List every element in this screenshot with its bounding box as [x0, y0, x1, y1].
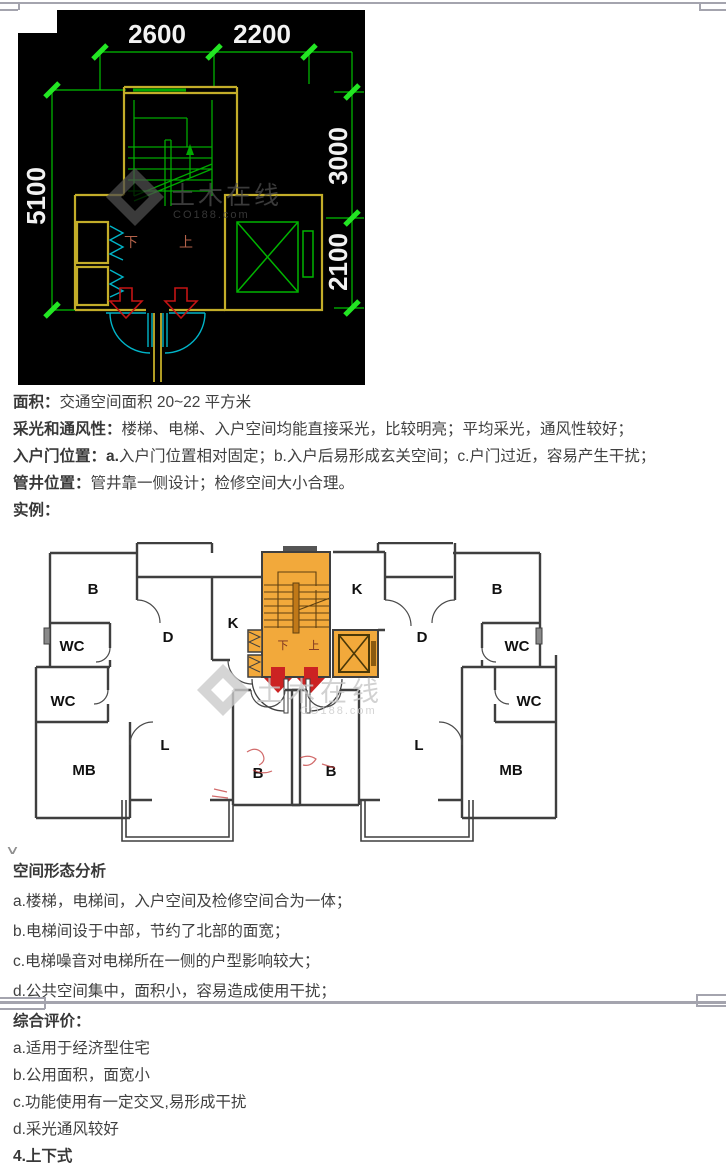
room-label: MB [499, 762, 522, 779]
intro-text: 面积：交通空间面积 20~22 平方米 采光和通风性：楼梯、电梯、入户空间均能直… [13, 389, 718, 524]
evaluation-item: d.采光通风较好 [13, 1116, 718, 1143]
plan-red-annotations [212, 749, 335, 798]
next-section-heading: 4.上下式 [13, 1148, 72, 1165]
evaluation-heading: 综合评价： [13, 1013, 91, 1030]
paragraph-area: 面积：交通空间面积 20~22 平方米 [13, 389, 718, 416]
watermark-brand: 土木在线 [256, 677, 384, 707]
room-label: B [88, 581, 99, 598]
analysis-heading: 空间形态分析 [13, 863, 106, 880]
cad-stair-core-image[interactable]: 2600 2200 5100 3000 2100 下 上 [18, 10, 365, 385]
paragraph-entry-door: 入户门位置：a.入户门位置相对固定；b.入户后易形成玄关空间；c.户门过近，容易… [13, 443, 718, 470]
room-label: L [414, 737, 423, 754]
paragraph-lighting: 采光和通风性：楼梯、电梯、入户空间均能直接采光，比较明亮；平均采光，通风性较好； [13, 416, 718, 443]
room-label: WC [517, 693, 542, 710]
room-label: L [160, 737, 169, 754]
room-label: MB [72, 762, 95, 779]
paragraph-label: 面积： [13, 394, 60, 411]
cad-label-down: 下 [124, 234, 138, 250]
evaluation-item: c.功能使用有一定交叉,易形成干扰 [13, 1089, 718, 1116]
plan-label-up: 上 [309, 639, 320, 652]
plan-stair-rail [293, 583, 299, 633]
analysis-section: 空间形态分析 a.楼梯，电梯间，入户空间及检修空间合为一体； b.电梯间设于中部… [13, 857, 718, 1007]
room-label: WC [60, 638, 85, 655]
evaluation-item: a.适用于经济型住宅 [13, 1035, 718, 1062]
evaluation-section: 综合评价： a.适用于经济型住宅 b.公用面积，面宽小 c.功能使用有一定交叉,… [13, 1008, 718, 1170]
floor-plan-image[interactable]: B WC D K K B WC D WC MB L B B L MB WC 下 … [28, 542, 650, 845]
floor-plan-svg: B WC D K K B WC D WC MB L B B L MB WC 下 … [28, 542, 650, 845]
paragraph-text: 入户门位置相对固定；b.入户后易形成玄关空间；c.户门过近，容易产生干扰； [119, 448, 656, 465]
dim-2600: 2600 [128, 19, 186, 49]
dim-5100: 5100 [21, 167, 51, 225]
paragraph-pipe-shaft: 管井位置：管井靠一侧设计；检修空间大小合理。 [13, 470, 718, 497]
evaluation-item: b.公用面积，面宽小 [13, 1062, 718, 1089]
room-label: D [163, 629, 174, 646]
cad-label-up: 上 [179, 234, 193, 250]
paragraph-text: 管井靠一侧设计；检修空间大小合理。 [91, 475, 355, 492]
room-label: K [228, 615, 239, 632]
watermark-brand: 土木在线 [170, 182, 282, 210]
paragraph-label: 管井位置： [13, 475, 91, 492]
dim-2200: 2200 [233, 19, 291, 49]
paragraph-label: 实例： [13, 502, 60, 519]
cad-stair-core-svg: 2600 2200 5100 3000 2100 下 上 [18, 10, 365, 385]
analysis-item: a.楼梯，电梯间，入户空间及检修空间合为一体； [13, 887, 718, 917]
chevron-down-mark: ∨ [5, 843, 20, 857]
room-label: K [352, 581, 363, 598]
room-label: D [417, 629, 428, 646]
plan-label-down: 下 [278, 640, 289, 652]
analysis-item: c.电梯噪音对电梯所在一侧的户型影响较大； [13, 947, 718, 977]
dim-3000: 3000 [323, 127, 353, 185]
room-label: WC [505, 638, 530, 655]
paragraph-text: 楼梯、电梯、入户空间均能直接采光，比较明亮；平均采光，通风性较好； [122, 421, 634, 438]
room-label: WC [51, 693, 76, 710]
paragraph-example: 实例： [13, 497, 718, 524]
watermark-site: CO188.com [173, 209, 250, 221]
paragraph-text: 交通空间面积 20~22 平方米 [60, 394, 252, 411]
paragraph-label: 采光和通风性： [13, 421, 122, 438]
dim-2100: 2100 [323, 233, 353, 291]
room-label: B [492, 581, 503, 598]
room-label: B [253, 765, 264, 782]
watermark-site: CO188.com [300, 705, 377, 717]
paragraph-label: 入户门位置：a. [13, 448, 119, 465]
analysis-item: b.电梯间设于中部，节约了北部的面宽； [13, 917, 718, 947]
cad-corner-notch [18, 10, 57, 33]
plan-elevator-door [371, 641, 376, 666]
